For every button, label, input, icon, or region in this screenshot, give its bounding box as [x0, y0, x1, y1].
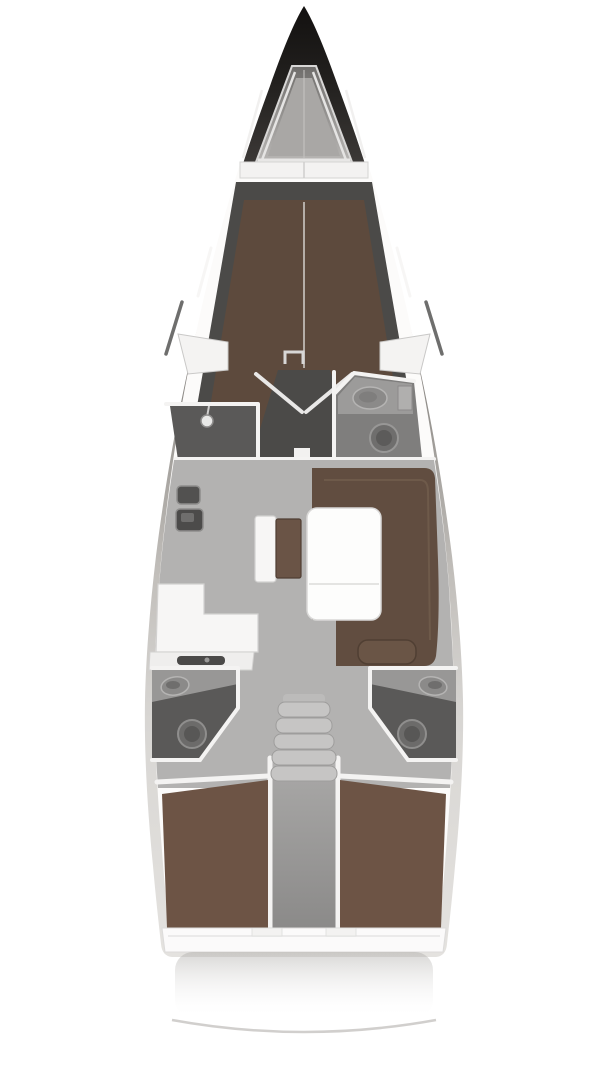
stern-step-port [252, 928, 282, 936]
stair-step-3 [274, 734, 334, 749]
galley-stove [177, 486, 200, 504]
bench-cushion [276, 519, 301, 578]
shower-room [170, 406, 258, 460]
hull-window-starboard-lower [426, 302, 442, 354]
hull-window-port-lower [166, 302, 182, 354]
engine-compartment [272, 770, 336, 928]
salon-bench [255, 516, 276, 582]
settee-corner-cushion [358, 640, 416, 664]
yacht-floor-plan [0, 0, 608, 1080]
aft-cabin-starboard-berth [340, 780, 446, 928]
forward-head [336, 374, 422, 458]
transom-shadow [175, 952, 433, 1018]
stern-step-starboard [326, 928, 356, 936]
corridor-door-threshold [294, 448, 310, 458]
foredeck-crossbeam [240, 162, 368, 178]
galley-sink-aft [177, 656, 225, 665]
swim-platform-edge [172, 1020, 436, 1032]
stair-step-2 [276, 718, 332, 733]
stern-deck [162, 928, 446, 952]
shower-head-icon [201, 415, 213, 427]
companionway-stairs [271, 694, 337, 781]
aft-cabin-port-berth [162, 780, 268, 928]
stair-step-4 [272, 750, 336, 765]
floor-plan-canvas [0, 0, 608, 1080]
stair-step-1 [278, 702, 330, 717]
forward-head-cabinet [398, 386, 412, 410]
galley-faucet [205, 658, 210, 663]
stair-step-5 [271, 766, 337, 781]
salon-table [307, 508, 381, 620]
